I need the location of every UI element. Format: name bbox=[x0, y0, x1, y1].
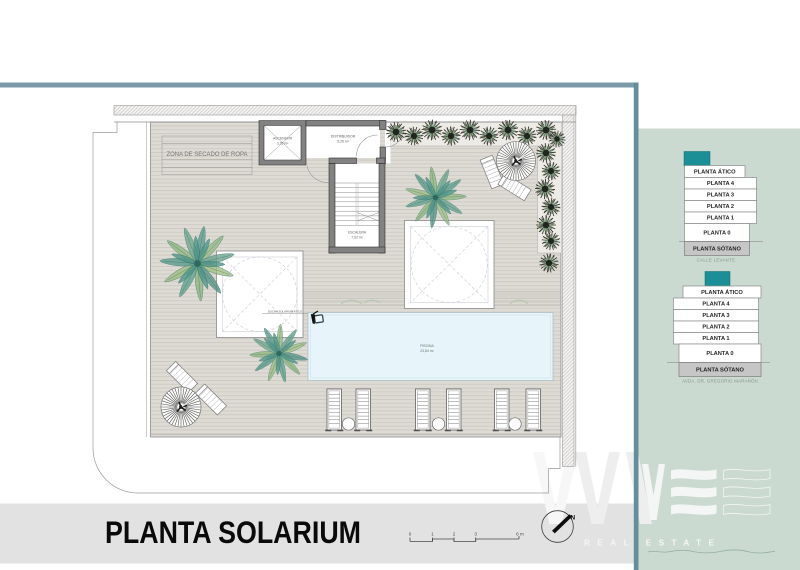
svg-text:PLANTA SOLARIUM: PLANTA SOLARIUM bbox=[105, 514, 361, 550]
svg-text:AVDA. DR. GREGORIO MARAÑÓN: AVDA. DR. GREGORIO MARAÑÓN bbox=[682, 379, 758, 384]
svg-text:6 m: 6 m bbox=[516, 532, 524, 537]
svg-text:PLANTA 1: PLANTA 1 bbox=[702, 336, 729, 342]
svg-text:PLANTA 3: PLANTA 3 bbox=[702, 313, 729, 319]
svg-text:ASCENSOR: ASCENSOR bbox=[273, 137, 293, 141]
svg-text:DISTRIBUIDOR: DISTRIBUIDOR bbox=[331, 135, 356, 139]
svg-text:PLANTA 0: PLANTA 0 bbox=[706, 351, 733, 357]
svg-text:5,26 m²: 5,26 m² bbox=[337, 140, 349, 144]
svg-text:PLANTA 2: PLANTA 2 bbox=[707, 204, 734, 210]
svg-text:PLANTA SÓTANO: PLANTA SÓTANO bbox=[693, 245, 741, 253]
svg-text:3,75 m²: 3,75 m² bbox=[277, 142, 289, 146]
svg-text:PISCINA: PISCINA bbox=[420, 344, 434, 348]
svg-text:CALLE LEVANTE: CALLE LEVANTE bbox=[697, 258, 736, 263]
svg-text:23,84 m²: 23,84 m² bbox=[420, 349, 434, 353]
svg-text:2: 2 bbox=[453, 532, 456, 537]
svg-text:PLANTA ÁTICO: PLANTA ÁTICO bbox=[701, 289, 743, 296]
svg-text:3: 3 bbox=[474, 532, 477, 537]
svg-text:PLANTA ÁTICO: PLANTA ÁTICO bbox=[694, 169, 736, 176]
svg-text:N: N bbox=[571, 515, 576, 522]
svg-text:PLANTA 1: PLANTA 1 bbox=[707, 216, 734, 222]
svg-text:PLANTA 2: PLANTA 2 bbox=[702, 325, 729, 331]
svg-text:PLANTA 4: PLANTA 4 bbox=[702, 302, 730, 308]
svg-text:DUCHA SOLARIUM ATICO: DUCHA SOLARIUM ATICO bbox=[268, 310, 303, 314]
svg-text:PLANTA 3: PLANTA 3 bbox=[707, 193, 734, 199]
svg-text:PLANTA 4: PLANTA 4 bbox=[707, 181, 735, 187]
svg-text:PLANTA 0: PLANTA 0 bbox=[703, 231, 730, 237]
svg-text:PLANTA SÓTANO: PLANTA SÓTANO bbox=[696, 366, 744, 374]
svg-text:0: 0 bbox=[409, 532, 412, 537]
svg-text:ESCALERA: ESCALERA bbox=[348, 231, 367, 235]
svg-text:1: 1 bbox=[431, 532, 434, 537]
svg-text:7,02 m²: 7,02 m² bbox=[351, 236, 363, 240]
svg-text:ZONA DE SECADO DE ROPA: ZONA DE SECADO DE ROPA bbox=[167, 151, 249, 158]
